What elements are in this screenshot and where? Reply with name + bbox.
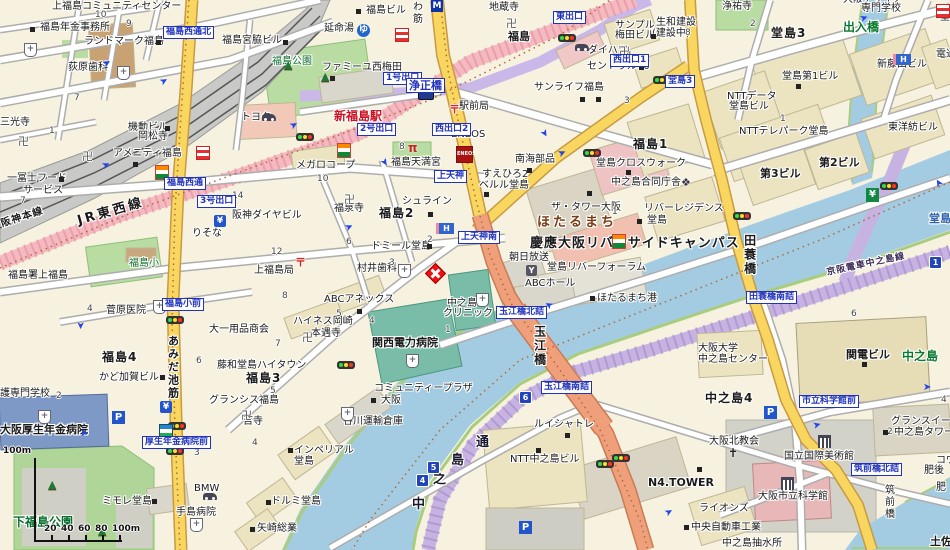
intersection-label: 3号出口 <box>197 195 236 208</box>
traffic-light-icon <box>880 182 898 190</box>
map-label: 駅前局 <box>459 102 489 113</box>
traffic-light-icon <box>612 454 630 462</box>
block-number: 2 <box>750 19 756 29</box>
block-number: 8 <box>685 28 691 38</box>
map-label: 福島署上福島 <box>8 271 68 282</box>
map-label: 地蔵寺 <box>489 3 519 14</box>
tree-icon: ▲ <box>284 58 292 71</box>
block-number: 10 <box>317 174 328 184</box>
map-label: ABCアネックス <box>324 295 394 306</box>
map-label: 梅田ビル <box>615 31 655 42</box>
bank-icon: ¥ <box>160 401 172 413</box>
map-label: インペリアル <box>294 446 354 457</box>
map-label: グランスイート <box>891 417 950 428</box>
shrine-icon: π <box>408 141 418 155</box>
map-label: 阪神本線 <box>0 206 45 230</box>
route-shield: 1 <box>929 256 942 269</box>
map-label: 新福島駅 <box>334 110 382 123</box>
map-label: ドルミ堂島 <box>271 497 321 508</box>
scale-tick <box>119 535 121 542</box>
block-number: 4 <box>87 304 93 314</box>
intersection-label: 上天神南 <box>458 231 500 244</box>
map-label: サービス <box>23 186 63 197</box>
map-label: 延命湯 <box>324 24 354 35</box>
oneway-arrow-icon: ➤ <box>932 176 946 189</box>
temple-icon: 卍 <box>344 191 355 207</box>
map-label: ドミール堂島 <box>371 242 431 253</box>
scale-top-label: 100m <box>3 446 31 456</box>
oneway-arrow-icon: ➤ <box>556 147 568 161</box>
map-label: 堂島ビル <box>729 102 769 113</box>
oneway-arrow-icon: ➤ <box>923 382 931 393</box>
post-office-icon: 〒 <box>295 254 306 270</box>
map-label: 上福島コミュニティセンター <box>52 2 181 13</box>
map-canvas[interactable]: 上福島コミュニティセンター福島年金事務所ランドマーク福島荻原歯科福島宮脇ビル機動… <box>0 0 950 550</box>
map-label: コミュニティープラザ <box>374 384 473 395</box>
map-label: NTT中之島ビル <box>510 455 580 466</box>
clinic-icon: + <box>406 354 419 368</box>
block-number: 4 <box>941 395 947 405</box>
car-dealer-icon <box>262 114 276 121</box>
block-number: 9 <box>126 19 132 29</box>
scale-vline <box>34 458 36 542</box>
map-label: 之 <box>433 473 446 487</box>
map-label: 中之島センター <box>698 355 768 366</box>
intersection-label: 西出口2 <box>432 123 471 136</box>
building-dot-icon <box>152 499 157 504</box>
traffic-light-icon <box>296 133 314 141</box>
map-label: 関電ビル <box>846 349 890 361</box>
scale-tick-label: 20 <box>44 524 57 534</box>
clinic-icon: + <box>190 518 203 532</box>
route-shield: 6 <box>519 391 532 404</box>
block-number: 6 <box>346 237 352 247</box>
oneway-arrow-icon: ➤ <box>100 159 112 173</box>
building-dot-icon <box>427 244 432 249</box>
map-label: 筑前橋 <box>882 484 893 520</box>
building-dot-icon <box>165 126 170 131</box>
map-label: 阪神ダイヤビル <box>232 211 302 222</box>
clinic-icon: + <box>24 43 37 57</box>
atm-icon: ¥ <box>866 188 879 202</box>
map-label: 電通 <box>936 50 950 61</box>
map-label: 中 <box>412 498 425 512</box>
map-label: りそな <box>192 229 222 240</box>
map-label: グランシス福島 <box>209 396 279 407</box>
temple-icon: 卍 <box>506 15 517 31</box>
building-dot-icon <box>250 527 255 532</box>
block-number: 6 <box>196 356 202 366</box>
building-dot-icon <box>596 97 601 102</box>
map-label: 中央自動車工業 <box>691 523 761 534</box>
building-dot-icon <box>133 162 138 167</box>
map-label: 大阪 <box>381 396 401 407</box>
map-label: 田蓑橋 <box>743 234 756 276</box>
temple-icon: 卍 <box>18 133 29 149</box>
intersection-label: 2号出口 <box>357 123 396 136</box>
map-label: 堂島3 <box>771 27 806 40</box>
parking-icon: P <box>764 406 777 419</box>
map-label: ハイネス岡崎 <box>293 317 353 328</box>
block-number: 3 <box>624 96 630 106</box>
oneway-arrow-icon: ➤ <box>377 156 391 169</box>
map-labels-layer: 上福島コミュニティセンター福島年金事務所ランドマーク福島荻原歯科福島宮脇ビル機動… <box>0 0 950 550</box>
oneway-arrow-icon: ➤ <box>75 321 86 329</box>
traffic-light-icon <box>166 316 184 324</box>
map-label: 堂島 <box>294 457 314 468</box>
block-number: 5 <box>336 309 342 319</box>
seven-eleven-icon <box>612 234 626 249</box>
scale-tick-label: 60 <box>78 524 91 534</box>
map-label: 中之島 <box>902 350 938 363</box>
building-dot-icon <box>484 192 489 197</box>
map-label: 中之島タワー <box>894 428 950 439</box>
museum-icon <box>818 435 831 448</box>
block-number: 7 <box>20 196 26 206</box>
map-label: クリニック <box>443 309 493 320</box>
museum-icon <box>781 477 794 490</box>
map-label: 第3ビル <box>760 168 801 180</box>
map-label: 護専門学校 <box>0 389 50 400</box>
building-dot-icon <box>156 40 161 45</box>
map-label: 第2ビル <box>819 157 860 169</box>
map-label: 藤和堂島ハイタウン <box>217 361 306 372</box>
map-label: ベルル堂島 <box>479 181 529 192</box>
scale-tick-label: 100m <box>112 524 140 534</box>
broadcast-icon: Y <box>526 265 537 276</box>
building-dot-icon <box>590 296 595 301</box>
map-label: ルイシャトレ <box>534 420 594 431</box>
block-number: 7 <box>275 339 281 349</box>
intersection-label: 東出口 <box>553 11 586 24</box>
map-label: 肥後 <box>924 466 944 477</box>
intersection-label: 福島西通北 <box>163 26 214 39</box>
map-label: 島 <box>451 454 464 468</box>
block-number: 1 <box>49 126 55 136</box>
clinic-icon: + <box>341 407 354 421</box>
hotel-icon: H <box>436 223 454 234</box>
scale-tick-label: 80 <box>95 524 108 534</box>
map-label: 専門学校 <box>861 4 901 15</box>
map-label: リバーレジデンス <box>644 204 724 215</box>
church-icon: ✝ <box>728 446 738 460</box>
shop-icon <box>936 4 950 18</box>
car-dealer-icon <box>203 493 217 500</box>
map-label: 浄祐寺 <box>722 2 752 13</box>
scale-tick <box>85 535 87 542</box>
block-number: 8 <box>399 142 405 152</box>
map-label: 一冨士フード <box>7 174 67 185</box>
map-label: 土佐堀 <box>930 536 950 548</box>
building-dot-icon <box>536 448 541 453</box>
map-label: 中之島合同庁舎 <box>611 178 681 189</box>
map-label: 中之島抽水所 <box>722 539 782 550</box>
building-dot-icon <box>637 219 642 224</box>
shop-icon <box>196 146 210 160</box>
block-number: 3 <box>389 258 395 268</box>
map-label: わ筋 <box>410 1 421 25</box>
map-label: 堂島リバーフォーラム <box>547 263 646 274</box>
temple-icon: 卍 <box>241 407 252 423</box>
block-number: 8 <box>282 291 288 301</box>
traffic-light-icon <box>558 34 576 42</box>
building-dot-icon <box>626 170 631 175</box>
map-label: あみだ池筋 <box>167 335 179 400</box>
map-label: ライオンズ <box>699 504 749 515</box>
map-label: メガロコープ <box>296 161 355 172</box>
block-number: 4 <box>252 438 258 448</box>
building-dot-icon <box>330 76 335 81</box>
building-dot-icon <box>565 433 570 438</box>
map-label: 堂島 <box>929 213 950 225</box>
scale-tick <box>68 535 70 542</box>
map-label: 菅原医院 <box>106 306 146 317</box>
map-label: 関西電力病院 <box>372 337 438 349</box>
parking-icon: P <box>519 521 532 534</box>
building-dot-icon <box>283 40 288 45</box>
building-dot-icon <box>428 212 433 217</box>
map-label: 国立国際美術館 <box>784 452 854 463</box>
block-number: 4 <box>369 316 375 326</box>
map-label: 京阪電車中之島線 <box>826 252 906 278</box>
map-label: 福島宮脇ビル <box>222 36 282 47</box>
map-label: 南海部品 <box>515 155 555 166</box>
traffic-light-icon <box>733 212 751 220</box>
map-label: 大阪大学 <box>698 344 738 355</box>
clinic-icon: + <box>117 66 130 80</box>
map-label: ほたるまち港 <box>597 294 657 305</box>
map-label: 肥 <box>936 483 946 494</box>
map-label: 慶應大阪リバーサイドキャンパス <box>530 237 740 251</box>
oneway-arrow-icon: ➤ <box>288 119 301 133</box>
oneway-arrow-icon: ➤ <box>812 419 823 432</box>
clinic-icon: + <box>398 264 411 278</box>
map-label: 大阪厚生年金病院 <box>0 424 88 436</box>
building-dot-icon <box>883 430 888 435</box>
map-label: アメニティ福島 <box>113 149 182 160</box>
oneway-arrow-icon: ➤ <box>80 428 88 439</box>
building-dot-icon <box>288 448 293 453</box>
block-number: 1 <box>612 207 618 217</box>
intersection-label: 西出口1 <box>610 54 649 67</box>
intersection-label: 田蓑橋南詰 <box>746 291 797 304</box>
map-label: 東洋紡ビル <box>888 123 938 134</box>
map-label: 福島年金事務所 <box>40 23 110 34</box>
map-label: N4.TOWER <box>648 477 714 489</box>
intersection-label: 厚生年金病院前 <box>142 436 211 449</box>
building-dot-icon <box>580 97 585 102</box>
traffic-light-icon <box>583 149 601 157</box>
map-label: 福島天満宮 <box>391 158 441 169</box>
map-label: ザ・タワー大阪 <box>551 203 621 214</box>
map-label: 堂島クロスウォーク <box>596 159 686 170</box>
block-number: 6 <box>851 309 857 319</box>
map-label: ほたるまち <box>537 216 617 230</box>
scale-tick <box>51 535 53 542</box>
map-label: 上福島局 <box>254 266 294 277</box>
intersection-label: 福島小前 <box>162 298 204 311</box>
traffic-light-icon <box>337 361 355 369</box>
intersection-label: 浄正橋 <box>406 78 445 93</box>
clinic-icon: + <box>38 410 51 424</box>
map-label: NTTテレパーク堂島 <box>739 127 829 138</box>
intersection-label: 堂島3 <box>665 75 695 88</box>
building-dot-icon <box>160 375 165 380</box>
map-label: 堂島 <box>647 216 667 227</box>
map-label: 生和建設 <box>656 18 696 29</box>
parking-icon: P <box>112 411 125 424</box>
building-dot-icon <box>356 9 361 14</box>
block-number: 7 <box>74 93 80 103</box>
intersection-label: 玉江橋北詰 <box>496 306 547 319</box>
block-number: 10 <box>95 10 106 20</box>
map-label: 福島2 <box>379 207 414 220</box>
map-label: 福島4 <box>102 351 137 364</box>
temple-icon: 卍 <box>302 329 313 345</box>
clinic-icon: + <box>476 293 489 307</box>
tree-icon: ▲ <box>48 478 56 491</box>
map-label: ミモレ堂島 <box>102 497 152 508</box>
map-label: サンライフ福島 <box>534 83 604 94</box>
oneway-arrow-icon: ➤ <box>537 127 551 140</box>
map-label: 福島 <box>508 31 530 43</box>
oneway-arrow-icon: ➤ <box>158 75 171 89</box>
map-label: 玉江橋 <box>533 325 546 367</box>
map-label: 矢崎総業 <box>257 524 297 535</box>
scale-tick <box>102 535 104 542</box>
intersection-label: 筑前橋北詰 <box>851 463 902 476</box>
temple-icon: 卍 <box>82 148 93 164</box>
map-label: すえひろ2 <box>482 170 528 181</box>
tree-icon: ▲ <box>321 70 329 83</box>
map-label: 福島3 <box>246 372 281 385</box>
building-dot-icon <box>587 191 592 196</box>
map-label: 中之島4 <box>705 392 753 405</box>
map-label: 岡松寺 <box>138 132 168 143</box>
map-label: かど加賀ビル <box>99 373 159 384</box>
post-office-icon: 〒 <box>449 101 460 117</box>
scale-tick-label: 40 <box>61 524 74 534</box>
map-label: ランドマーク福島 <box>84 37 164 48</box>
car-dealer-icon <box>575 44 589 51</box>
map-label: 福島小 <box>129 259 159 270</box>
map-label: JR東西線 <box>76 196 146 228</box>
map-label: 大一用品商会 <box>209 325 269 336</box>
map-label: 本遇寺 <box>311 329 341 340</box>
government-icon: ❖ <box>681 176 691 189</box>
building-dot-icon <box>684 525 689 530</box>
shop-icon <box>395 28 409 42</box>
seven-eleven-icon <box>337 143 351 158</box>
map-label: 手島病院 <box>176 508 216 519</box>
map-label: 通 <box>476 436 489 450</box>
oneway-arrow-icon: ➤ <box>343 221 355 235</box>
route-shield: 5 <box>427 461 440 474</box>
map-label: 福島ビル <box>366 6 406 17</box>
building-dot-icon <box>371 398 376 403</box>
building-dot-icon <box>527 168 532 173</box>
building-dot-icon <box>697 467 702 472</box>
traffic-light-icon <box>596 460 614 468</box>
building-dot-icon <box>651 34 656 39</box>
subway-entrance-icon: M <box>431 0 443 12</box>
building-dot-icon <box>862 362 867 367</box>
block-number: 1 <box>780 114 786 124</box>
map-label: 大阪市立科学館 <box>758 492 828 503</box>
map-center-marker <box>425 263 446 284</box>
building-dot-icon <box>266 500 271 505</box>
intersection-label: 福島西通 <box>164 177 206 190</box>
map-label: ABCホール <box>525 279 576 290</box>
intersection-label: 玉江橋南詰 <box>541 381 592 394</box>
route-shield: 4 <box>416 474 429 487</box>
building-dot-icon <box>30 27 35 32</box>
map-label: 福島1 <box>633 138 668 151</box>
block-number: 12 <box>271 247 282 257</box>
block-number: 5 <box>270 386 276 396</box>
building-dot-icon <box>357 309 362 314</box>
map-label: 朝日放送 <box>509 253 549 264</box>
building-dot-icon <box>796 84 801 89</box>
block-number: 2 <box>56 391 62 401</box>
oneway-arrow-icon: ➤ <box>663 506 676 520</box>
bathhouse-icon: ゆ <box>357 24 370 37</box>
scale-hline <box>34 540 122 542</box>
building-dot-icon <box>59 177 64 182</box>
map-label: 三光寺 <box>0 118 30 129</box>
hotel-icon: H <box>893 54 911 65</box>
block-number: 3 <box>194 448 200 458</box>
block-number: 1 <box>445 325 451 335</box>
intersection-label: 上天神 <box>434 170 467 183</box>
gas-station-icon: ENEOS <box>456 146 473 163</box>
intersection-label: 市立科学館前 <box>799 395 859 408</box>
map-label: 堂島第1ビル <box>782 72 838 83</box>
bank-icon: ¥ <box>214 215 226 227</box>
